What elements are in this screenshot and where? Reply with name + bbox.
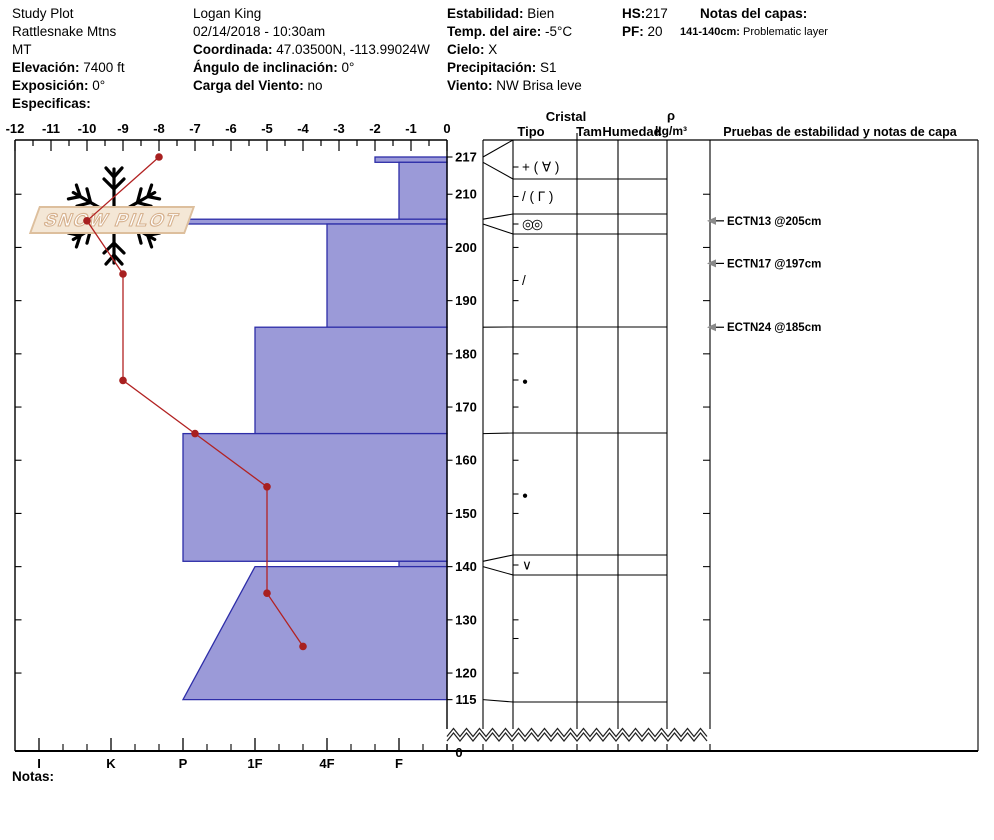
depth-axis: 217210200190180170160150140130120115 xyxy=(15,150,477,708)
layer-wedge-connector xyxy=(483,224,513,234)
depth-label: 115 xyxy=(456,692,477,707)
layer-wedge-connector xyxy=(483,433,513,434)
header-humedad: Humedad xyxy=(602,124,661,139)
layer-wedge-connector xyxy=(483,567,513,575)
zigzag-line xyxy=(447,733,707,741)
temp-tick-label: -10 xyxy=(78,121,97,136)
stability-test-label: ECTN13 @205cm xyxy=(727,216,821,228)
temp-tick-label: -5 xyxy=(261,121,273,136)
left-arrow-icon xyxy=(707,259,716,267)
depth-label: 130 xyxy=(455,612,477,627)
snowflake-arm xyxy=(109,183,161,224)
header-line: Precipitación: S1 xyxy=(447,59,582,77)
depth-label: 120 xyxy=(455,666,477,681)
stability-tests: ECTN13 @205cmECTN17 @197cmECTN24 @185cm xyxy=(707,216,821,334)
watermark-text: SNOW PILOT xyxy=(41,210,183,231)
temperature-curve-layer xyxy=(0,0,994,840)
branch xyxy=(68,192,80,203)
header-line: Especificas: xyxy=(12,95,125,113)
header-column-5: Notas del capas:141-140cm: Problematic l… xyxy=(700,5,848,41)
temperature-point xyxy=(83,217,91,225)
header-line: Notas del capas: xyxy=(700,5,848,23)
depth-label: 180 xyxy=(455,346,477,361)
branch xyxy=(114,179,124,189)
branch xyxy=(104,243,114,253)
header-column-4: HS:217PF: 20 xyxy=(622,5,668,41)
header-tam: Tam xyxy=(576,124,602,139)
branch xyxy=(106,168,114,177)
layer-bar xyxy=(399,162,447,219)
branch xyxy=(132,230,146,244)
temp-tick-label: -8 xyxy=(153,121,165,136)
temp-tick-label: -7 xyxy=(189,121,201,136)
layer-wedge-connector xyxy=(483,700,513,702)
branch xyxy=(137,198,151,212)
depth-label: 140 xyxy=(455,559,477,574)
branch xyxy=(144,236,156,247)
header-cristal: Cristal xyxy=(546,109,586,124)
branch xyxy=(114,168,122,177)
temperature-point xyxy=(119,270,127,278)
snowflake-arm xyxy=(67,207,119,248)
layer-table xyxy=(483,133,978,751)
header-line: Elevación: 7400 ft xyxy=(12,59,125,77)
header-line: HS:217 xyxy=(622,5,668,23)
depth-label: 210 xyxy=(455,187,477,202)
scale-break-zigzag xyxy=(447,729,707,742)
branch xyxy=(82,189,96,203)
branch xyxy=(114,243,124,253)
temp-tick-label: -4 xyxy=(297,121,309,136)
branch xyxy=(72,185,84,196)
temperature-axis: -12-11-10-9-8-7-6-5-4-3-2-10 xyxy=(6,121,451,151)
hardness-label: 1F xyxy=(247,756,262,771)
snowflake-arms xyxy=(67,168,160,264)
layer-bar xyxy=(183,434,447,562)
layer-bar-gradient xyxy=(183,567,447,700)
depth-label: 200 xyxy=(455,240,477,255)
plot-frame xyxy=(15,140,978,751)
header-column-1: Study PlotRattlesnake MtnsMTElevación: 7… xyxy=(12,5,125,113)
branch xyxy=(148,192,160,203)
profile-plot: -12-11-10-9-8-7-6-5-4-3-2-10217210200190… xyxy=(0,0,994,840)
arm xyxy=(73,216,114,240)
header-column-2: Logan King02/14/2018 - 10:30amCoordinada… xyxy=(193,5,430,95)
grain-symbols: + ( ∀ )/ ( Γ )◎◎/●●∨ xyxy=(522,160,559,573)
header-line: Ángulo de inclinación: 0° xyxy=(193,59,430,77)
arm xyxy=(73,193,114,217)
snowpilot-profile-page: Study PlotRattlesnake MtnsMTElevación: 7… xyxy=(0,0,994,840)
snowpilot-logo: SNOW PILOT xyxy=(29,206,195,234)
branch xyxy=(82,230,96,244)
temp-tick-label: -6 xyxy=(225,121,237,136)
stability-test-label: ECTN17 @197cm xyxy=(727,258,821,270)
temp-tick-label: -1 xyxy=(405,121,417,136)
layer-bar xyxy=(399,561,447,566)
left-arrow-icon xyxy=(707,323,716,331)
depth-label: 150 xyxy=(455,506,477,521)
temp-tick-label: -9 xyxy=(117,121,129,136)
notes-label: Notas: xyxy=(12,769,54,784)
depth-label: 190 xyxy=(455,293,477,308)
layer-bar xyxy=(255,327,447,433)
grain-symbol: + ( ∀ ) xyxy=(522,160,559,175)
header-line: 02/14/2018 - 10:30am xyxy=(193,23,430,41)
branch xyxy=(114,255,122,264)
layer-wedge-connector xyxy=(483,214,513,219)
grain-symbol: ◎◎ xyxy=(522,217,543,232)
layer-wedge-connector xyxy=(483,555,513,561)
temp-tick-label: -2 xyxy=(369,121,381,136)
hardness-label: 4F xyxy=(319,756,334,771)
snowflake-arm xyxy=(104,216,124,264)
temperature-point xyxy=(119,377,127,385)
branch xyxy=(132,189,146,203)
grain-symbol: ● xyxy=(522,491,528,502)
header-line: Logan King xyxy=(193,5,430,23)
branch xyxy=(77,198,91,212)
grain-symbol: / xyxy=(522,273,526,288)
header-line: MT xyxy=(12,41,125,59)
temperature-point xyxy=(263,589,271,597)
grain-symbol: ∨ xyxy=(522,558,532,573)
header-column-3: Estabilidad: BienTemp. del aire: -5°CCie… xyxy=(447,5,582,95)
header-line: Carga del Viento: no xyxy=(193,77,430,95)
depth-label: 160 xyxy=(455,453,477,468)
layer-bar xyxy=(375,157,447,162)
stability-test-label: ECTN24 @185cm xyxy=(727,322,821,334)
header-line: Temp. del aire: -5°C xyxy=(447,23,582,41)
header-tipo: Tipo xyxy=(517,124,544,139)
temperature-point xyxy=(155,153,163,161)
header-line: Exposición: 0° xyxy=(12,77,125,95)
arm xyxy=(114,193,155,217)
hardness-axis: IKP1F4FF0 xyxy=(37,738,462,771)
layer-wedge-connector xyxy=(483,162,513,179)
hardness-label: K xyxy=(106,756,116,771)
hardness-label: P xyxy=(179,756,188,771)
temp-tick-label: -3 xyxy=(333,121,345,136)
snowflake-arm xyxy=(109,207,161,248)
header-density-rho: ρ xyxy=(667,108,675,123)
hardness-bars xyxy=(183,157,447,700)
temperature-line xyxy=(87,157,303,646)
branch xyxy=(72,236,84,247)
depth-label: 217 xyxy=(455,150,477,165)
header-line: Viento: NW Brisa leve xyxy=(447,77,582,95)
temperature-point xyxy=(263,483,271,491)
snowflake-arm xyxy=(104,168,124,216)
depth-label: 170 xyxy=(455,400,477,415)
temp-tick-label: -12 xyxy=(6,121,25,136)
branch xyxy=(137,221,151,235)
temp-tick-label: 0 xyxy=(443,121,450,136)
header-line: Estabilidad: Bien xyxy=(447,5,582,23)
table-headers: CristalTipoTamHumedadρkg/m³Pruebas de es… xyxy=(517,108,957,139)
temperature-profile xyxy=(83,153,307,650)
branch xyxy=(148,229,160,240)
hardness-label: F xyxy=(395,756,403,771)
branch xyxy=(104,179,114,189)
left-arrow-icon xyxy=(707,217,716,225)
depth-break-zero-label: 0 xyxy=(455,745,462,760)
layer-bar xyxy=(327,224,447,327)
layer-bar xyxy=(183,219,447,224)
branch xyxy=(77,221,91,235)
snowflake-arm xyxy=(67,183,119,224)
temperature-point xyxy=(191,430,199,438)
branch xyxy=(144,185,156,196)
grain-symbol: / ( Γ ) xyxy=(522,189,553,204)
header-stability-tests: Pruebas de estabilidad y notas de capa xyxy=(723,125,957,139)
header-line: 141-140cm: Problematic layer xyxy=(680,23,828,41)
snowflake-icon xyxy=(58,163,170,273)
temperature-point xyxy=(299,643,307,651)
temp-tick-label: -11 xyxy=(42,121,60,136)
header-line: PF: 20 xyxy=(622,23,668,41)
branch xyxy=(106,255,114,264)
header-line: Coordinada: 47.03500N, -113.99024W xyxy=(193,41,430,59)
arm xyxy=(114,216,155,240)
header-line: Cielo: X xyxy=(447,41,582,59)
branch xyxy=(68,229,80,240)
header-line: Study Plot xyxy=(12,5,125,23)
grain-symbol: ● xyxy=(522,377,528,388)
layer-wedge-connector xyxy=(483,140,513,157)
header-line: Rattlesnake Mtns xyxy=(12,23,125,41)
zigzag-line xyxy=(447,729,707,737)
header-density-units: kg/m³ xyxy=(655,124,687,138)
